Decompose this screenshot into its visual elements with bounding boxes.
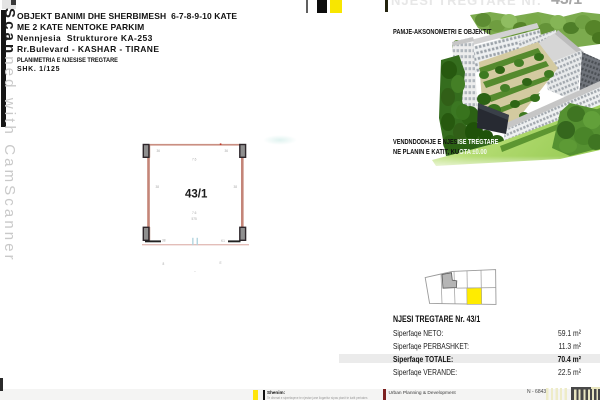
svg-text:38: 38 — [234, 185, 238, 189]
svg-text:36: 36 — [157, 149, 161, 153]
svg-text:E: E — [220, 261, 222, 265]
svg-text:7.6: 7.6 — [192, 211, 197, 215]
svg-text:36: 36 — [225, 149, 229, 153]
svg-text:38: 38 — [162, 239, 166, 243]
svg-text:K1: K1 — [221, 239, 225, 243]
svg-text:575: 575 — [192, 217, 198, 221]
svg-text:8: 8 — [163, 262, 165, 266]
svg-text:~: ~ — [194, 270, 196, 274]
svg-text:7.6: 7.6 — [192, 158, 197, 162]
svg-text:43/1: 43/1 — [185, 189, 208, 201]
svg-text:38: 38 — [156, 185, 160, 189]
